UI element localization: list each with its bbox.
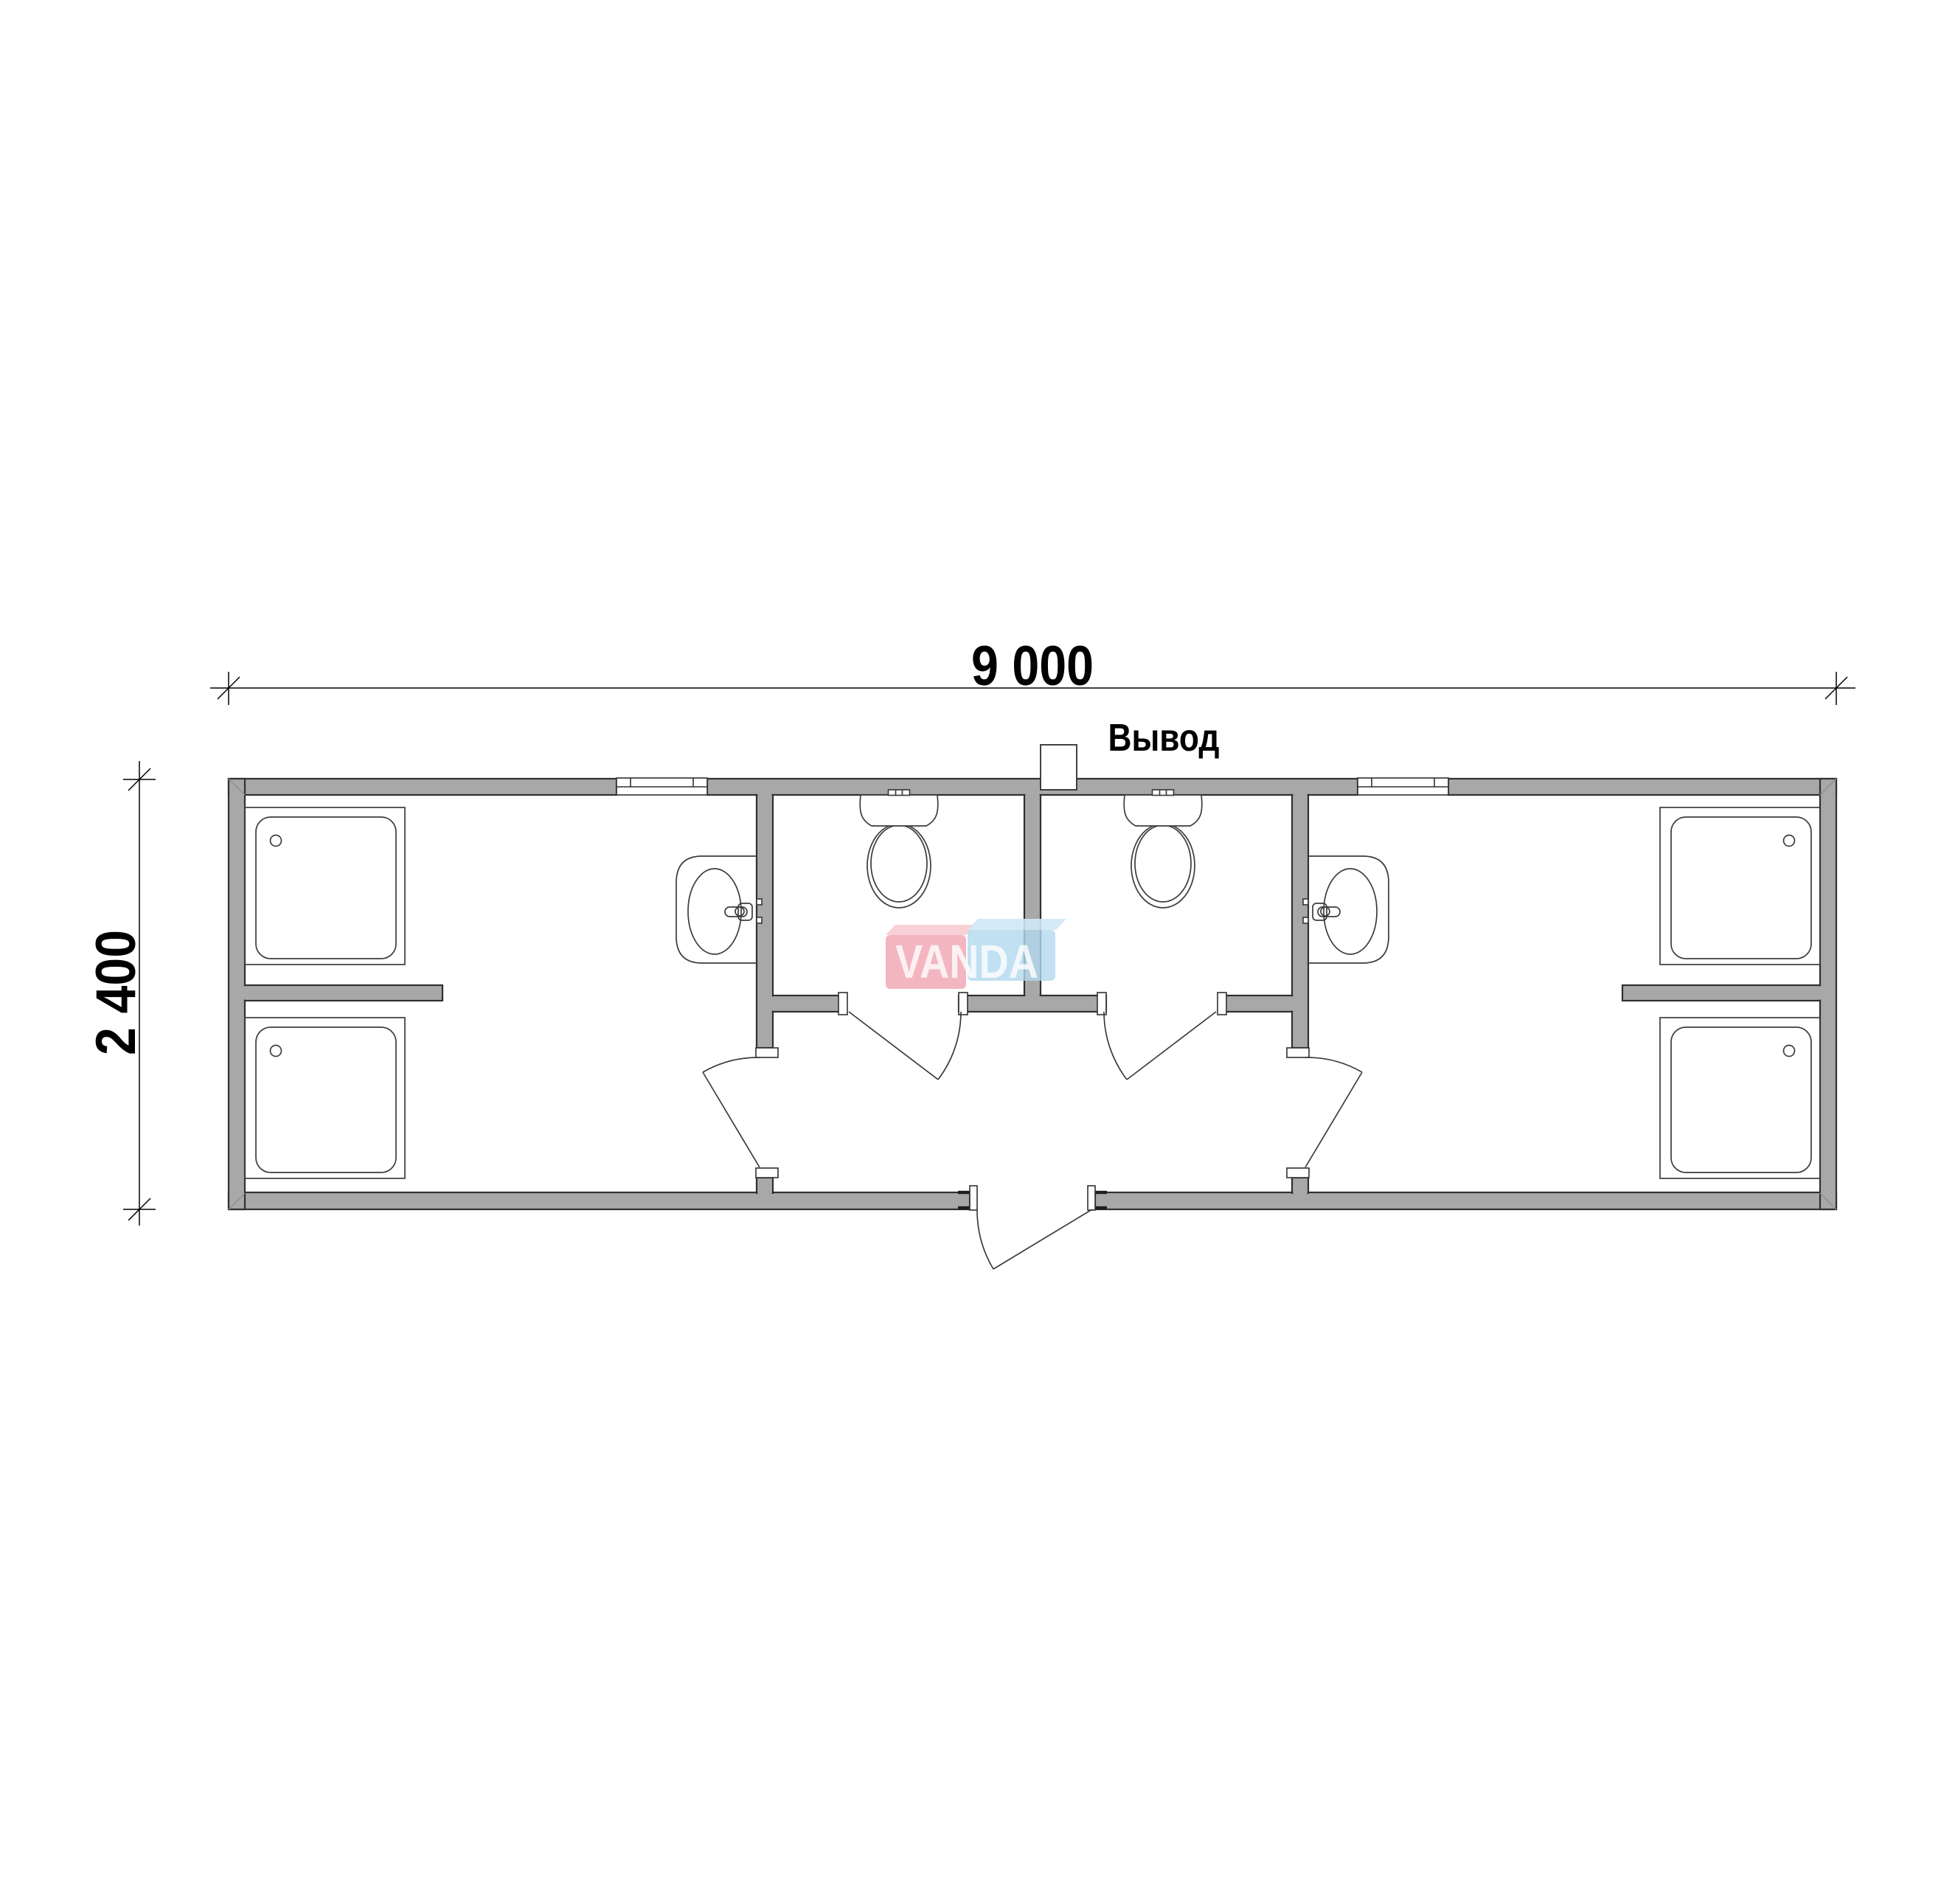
svg-text:2 400: 2 400 [85,930,147,1055]
svg-text:VANDA: VANDA [895,935,1038,988]
svg-text:Вывод: Вывод [1108,717,1220,760]
svg-text:9 000: 9 000 [971,635,1094,698]
